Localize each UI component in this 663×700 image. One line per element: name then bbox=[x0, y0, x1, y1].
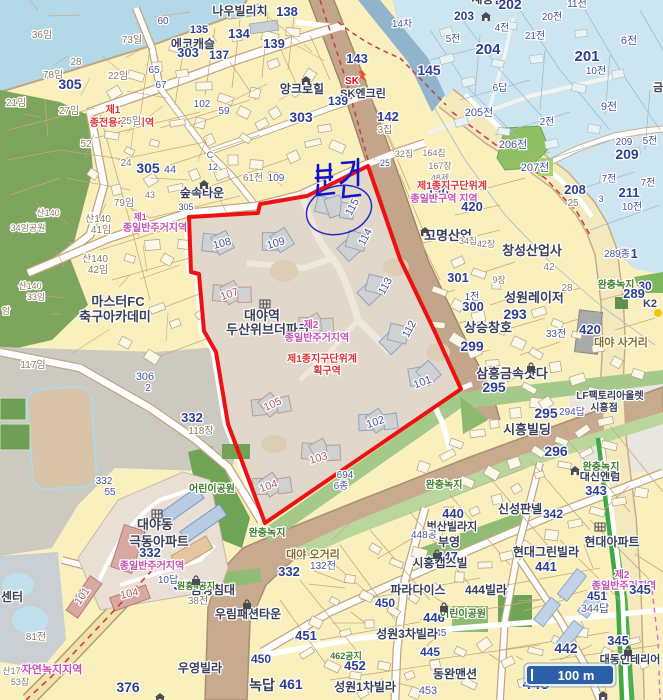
svg-text:301: 301 bbox=[447, 270, 469, 285]
svg-text:획구역: 획구역 bbox=[313, 364, 341, 377]
svg-text:제2: 제2 bbox=[304, 318, 319, 331]
svg-text:제1: 제1 bbox=[133, 211, 146, 222]
svg-text:상승창호: 상승창호 bbox=[464, 320, 512, 335]
svg-text:209: 209 bbox=[615, 146, 639, 162]
svg-text:6답: 6답 bbox=[493, 82, 508, 94]
svg-text:109: 109 bbox=[268, 173, 285, 184]
svg-text:7전: 7전 bbox=[641, 177, 656, 189]
svg-text:2전: 2전 bbox=[540, 116, 555, 128]
svg-text:67: 67 bbox=[155, 80, 167, 91]
svg-text:450: 450 bbox=[375, 596, 395, 610]
svg-text:294답: 294답 bbox=[559, 406, 585, 418]
svg-text:462공지: 462공지 bbox=[330, 650, 362, 661]
svg-text:296: 296 bbox=[544, 443, 568, 459]
svg-text:7전: 7전 bbox=[602, 173, 617, 185]
svg-text:현대아파트: 현대아파트 bbox=[584, 534, 639, 549]
svg-text:303: 303 bbox=[289, 109, 313, 125]
svg-text:36임: 36임 bbox=[32, 28, 52, 41]
svg-text:295: 295 bbox=[482, 379, 506, 395]
svg-text:441: 441 bbox=[535, 559, 557, 574]
svg-text:451: 451 bbox=[295, 628, 317, 643]
svg-text:145: 145 bbox=[417, 62, 441, 78]
svg-text:79임: 79임 bbox=[114, 196, 134, 209]
svg-text:332: 332 bbox=[181, 410, 203, 425]
svg-text:완충녹지: 완충녹지 bbox=[583, 460, 620, 473]
svg-text:207전: 207전 bbox=[521, 161, 549, 174]
svg-text:시흥점: 시흥점 bbox=[590, 401, 618, 414]
svg-text:산140: 산140 bbox=[18, 281, 41, 291]
svg-text:203: 203 bbox=[454, 9, 474, 23]
svg-text:299: 299 bbox=[460, 338, 484, 354]
svg-text:10전: 10전 bbox=[622, 201, 642, 213]
svg-text:자연녹지지역: 자연녹지지역 bbox=[22, 662, 83, 676]
svg-text:295: 295 bbox=[534, 405, 558, 421]
svg-text:332: 332 bbox=[96, 476, 113, 487]
svg-text:342: 342 bbox=[543, 507, 563, 521]
svg-text:303: 303 bbox=[177, 45, 199, 60]
svg-text:344답: 344답 bbox=[581, 602, 609, 615]
svg-text:제1종지구단위계: 제1종지구단위계 bbox=[417, 179, 487, 192]
svg-text:33전: 33전 bbox=[546, 328, 566, 340]
svg-text:42: 42 bbox=[543, 262, 555, 273]
svg-text:우영빌라: 우영빌라 bbox=[178, 660, 222, 675]
svg-text:440: 440 bbox=[442, 506, 464, 521]
svg-text:27임: 27임 bbox=[59, 104, 79, 117]
svg-text:25: 25 bbox=[567, 198, 579, 209]
svg-text:암: 암 bbox=[2, 305, 10, 316]
svg-text:제2: 제2 bbox=[615, 568, 630, 581]
svg-text:211: 211 bbox=[619, 185, 640, 200]
svg-text:22임: 22임 bbox=[108, 69, 128, 82]
svg-text:202: 202 bbox=[498, 0, 522, 12]
svg-text:100 m: 100 m bbox=[558, 668, 595, 683]
svg-text:5전: 5전 bbox=[446, 33, 461, 45]
svg-text:139: 139 bbox=[263, 36, 285, 51]
svg-text:694: 694 bbox=[337, 470, 354, 481]
svg-text:461: 461 bbox=[279, 676, 303, 692]
svg-text:38전: 38전 bbox=[188, 595, 208, 607]
svg-text:305: 305 bbox=[178, 202, 193, 212]
svg-text:208: 208 bbox=[564, 182, 586, 197]
svg-text:1전: 1전 bbox=[465, 291, 480, 303]
svg-text:대야 사거리: 대야 사거리 bbox=[594, 335, 648, 349]
svg-text:43: 43 bbox=[145, 190, 155, 200]
svg-text:167장: 167장 bbox=[428, 161, 451, 171]
svg-text:345: 345 bbox=[629, 582, 651, 597]
svg-text:SK: SK bbox=[345, 76, 360, 87]
svg-text:420: 420 bbox=[461, 199, 483, 214]
svg-text:축구아카데미: 축구아카데미 bbox=[79, 309, 151, 324]
svg-text:206전: 206전 bbox=[499, 138, 527, 151]
svg-text:완충녹지: 완충녹지 bbox=[426, 478, 463, 491]
svg-text:대야동: 대야동 bbox=[137, 517, 173, 532]
svg-text:42임: 42임 bbox=[88, 263, 108, 276]
svg-text:산140: 산140 bbox=[85, 213, 111, 225]
svg-text:332: 332 bbox=[139, 545, 161, 560]
svg-text:동완맨션: 동완맨션 bbox=[433, 666, 477, 681]
svg-text:종일반주거지역: 종일반주거지역 bbox=[120, 559, 184, 572]
svg-text:K2: K2 bbox=[643, 298, 657, 310]
svg-text:65: 65 bbox=[148, 65, 160, 76]
svg-text:마스터FC: 마스터FC bbox=[91, 294, 145, 309]
svg-text:132전: 132전 bbox=[310, 560, 336, 572]
svg-text:204: 204 bbox=[475, 41, 501, 58]
svg-text:부영: 부영 bbox=[438, 534, 460, 549]
svg-text:10답: 10답 bbox=[158, 574, 178, 586]
svg-text:305: 305 bbox=[136, 160, 160, 176]
svg-text:164집: 164집 bbox=[422, 147, 445, 158]
svg-text:61전: 61전 bbox=[243, 172, 263, 184]
svg-text:현대그린빌라: 현대그린빌라 bbox=[513, 544, 579, 559]
svg-text:파라다이스: 파라다이스 bbox=[390, 582, 445, 597]
svg-text:C: C bbox=[207, 150, 214, 160]
svg-text:녹답: 녹답 bbox=[249, 677, 275, 693]
svg-text:산140: 산140 bbox=[82, 253, 108, 265]
svg-text:3집: 3집 bbox=[378, 124, 393, 136]
svg-text:52: 52 bbox=[80, 139, 92, 150]
svg-text:시흥빌딩: 시흥빌딩 bbox=[503, 422, 551, 437]
svg-text:138: 138 bbox=[276, 4, 298, 19]
svg-text:32집: 32집 bbox=[395, 148, 413, 159]
svg-text:44: 44 bbox=[164, 164, 176, 176]
svg-text:343: 343 bbox=[585, 483, 607, 498]
svg-text:139: 139 bbox=[328, 94, 348, 108]
svg-text:444빌라: 444빌라 bbox=[465, 582, 507, 597]
svg-text:305: 305 bbox=[58, 76, 82, 92]
svg-text:20전: 20전 bbox=[542, 11, 562, 23]
svg-text:21임: 21임 bbox=[6, 96, 26, 109]
svg-text:25임: 25임 bbox=[121, 114, 141, 127]
svg-text:134: 134 bbox=[228, 26, 250, 41]
svg-text:종일반주거지역: 종일반주거지역 bbox=[123, 221, 187, 234]
svg-text:3: 3 bbox=[598, 194, 603, 204]
svg-text:5전: 5전 bbox=[643, 135, 658, 147]
svg-text:137: 137 bbox=[209, 48, 229, 62]
svg-text:성원3차빌라: 성원3차빌라 bbox=[376, 626, 438, 641]
svg-text:34집: 34집 bbox=[459, 235, 477, 246]
svg-text:센터: 센터 bbox=[1, 589, 23, 604]
svg-text:201: 201 bbox=[574, 48, 599, 65]
svg-text:대야역: 대야역 bbox=[244, 308, 280, 323]
svg-text:신성판넬: 신성판넬 bbox=[498, 501, 542, 516]
svg-text:대야 오거리: 대야 오거리 bbox=[286, 547, 340, 561]
svg-text:제1: 제1 bbox=[106, 103, 121, 116]
svg-text:9장: 9장 bbox=[492, 275, 505, 285]
svg-text:60: 60 bbox=[157, 16, 169, 27]
svg-text:345: 345 bbox=[607, 633, 629, 648]
svg-text:445: 445 bbox=[420, 645, 440, 659]
svg-text:205전: 205전 bbox=[465, 106, 493, 119]
svg-text:142: 142 bbox=[377, 109, 399, 124]
svg-text:금: 금 bbox=[653, 81, 663, 94]
svg-text:성원레이저: 성원레이저 bbox=[504, 290, 564, 305]
svg-text:117임: 117임 bbox=[20, 358, 45, 371]
svg-text:완충녹지: 완충녹지 bbox=[249, 526, 286, 539]
svg-text:376: 376 bbox=[116, 679, 140, 695]
svg-text:289: 289 bbox=[623, 286, 645, 301]
svg-text:450: 450 bbox=[251, 652, 271, 666]
svg-text:10전: 10전 bbox=[586, 65, 606, 77]
svg-text:종일반주거지역: 종일반주거지역 bbox=[285, 331, 349, 344]
svg-text:28: 28 bbox=[561, 283, 573, 294]
svg-text:143: 143 bbox=[346, 51, 368, 66]
svg-text:102: 102 bbox=[194, 99, 211, 110]
svg-text:81전: 81전 bbox=[26, 631, 46, 643]
svg-text:나우빌리치: 나우빌리치 bbox=[212, 3, 267, 18]
svg-text:332: 332 bbox=[278, 564, 300, 579]
svg-text:24: 24 bbox=[120, 158, 132, 169]
svg-text:2: 2 bbox=[145, 383, 151, 394]
svg-text:21전: 21전 bbox=[525, 30, 545, 42]
svg-text:451: 451 bbox=[587, 589, 607, 603]
svg-text:창성산업사: 창성산업사 bbox=[502, 243, 562, 258]
svg-text:53잡: 53잡 bbox=[11, 676, 29, 687]
svg-text:6종: 6종 bbox=[334, 480, 349, 492]
svg-text:55: 55 bbox=[104, 487, 116, 498]
svg-text:11전: 11전 bbox=[567, 0, 587, 10]
svg-text:73일: 73일 bbox=[122, 34, 142, 46]
svg-text:118장: 118장 bbox=[188, 425, 213, 437]
svg-text:41임: 41임 bbox=[91, 223, 111, 236]
svg-text:제1종지구단위계: 제1종지구단위계 bbox=[287, 352, 357, 365]
svg-text:6전: 6전 bbox=[621, 34, 637, 47]
svg-text:420: 420 bbox=[579, 322, 601, 337]
svg-text:34임공원: 34임공원 bbox=[11, 222, 46, 233]
svg-text:성원1차빌라: 성원1차빌라 bbox=[334, 679, 396, 694]
svg-text:42장: 42장 bbox=[477, 239, 495, 249]
svg-text:448공: 448공 bbox=[411, 529, 437, 541]
svg-text:산140: 산140 bbox=[36, 208, 59, 218]
svg-text:59: 59 bbox=[218, 106, 230, 117]
svg-text:LF팩토리아울렛: LF팩토리아울렛 bbox=[576, 389, 643, 402]
svg-text:어린이공원: 어린이공원 bbox=[189, 482, 235, 495]
svg-text:453: 453 bbox=[419, 685, 437, 697]
svg-text:28: 28 bbox=[70, 57, 82, 68]
svg-text:442: 442 bbox=[554, 640, 578, 656]
svg-text:12: 12 bbox=[208, 162, 218, 172]
svg-text:289종: 289종 bbox=[604, 248, 630, 260]
svg-text:9전: 9전 bbox=[601, 100, 617, 113]
svg-text:4전: 4전 bbox=[495, 22, 510, 34]
svg-text:14차: 14차 bbox=[392, 18, 412, 30]
svg-text:33임: 33임 bbox=[27, 291, 45, 302]
svg-text:25: 25 bbox=[380, 158, 390, 168]
svg-text:135: 135 bbox=[190, 24, 208, 36]
svg-text:306: 306 bbox=[136, 371, 154, 383]
